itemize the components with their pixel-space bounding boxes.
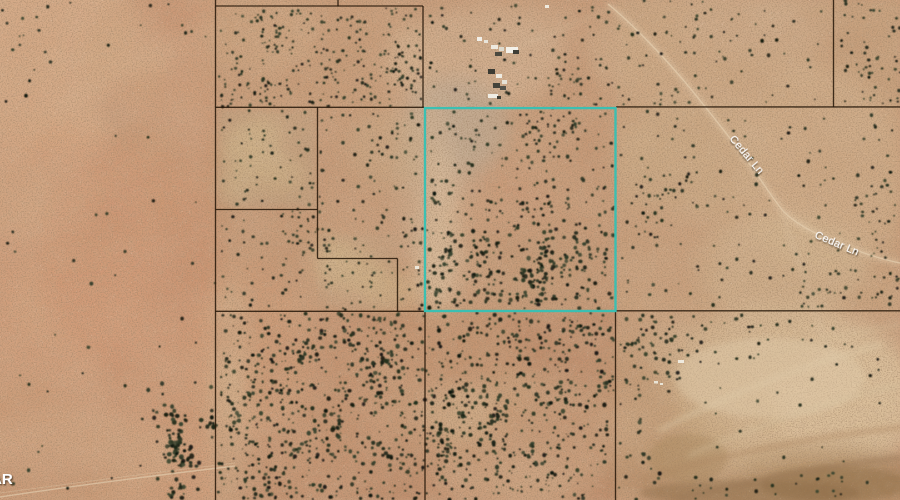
svg-text:AR: AR — [0, 471, 13, 488]
